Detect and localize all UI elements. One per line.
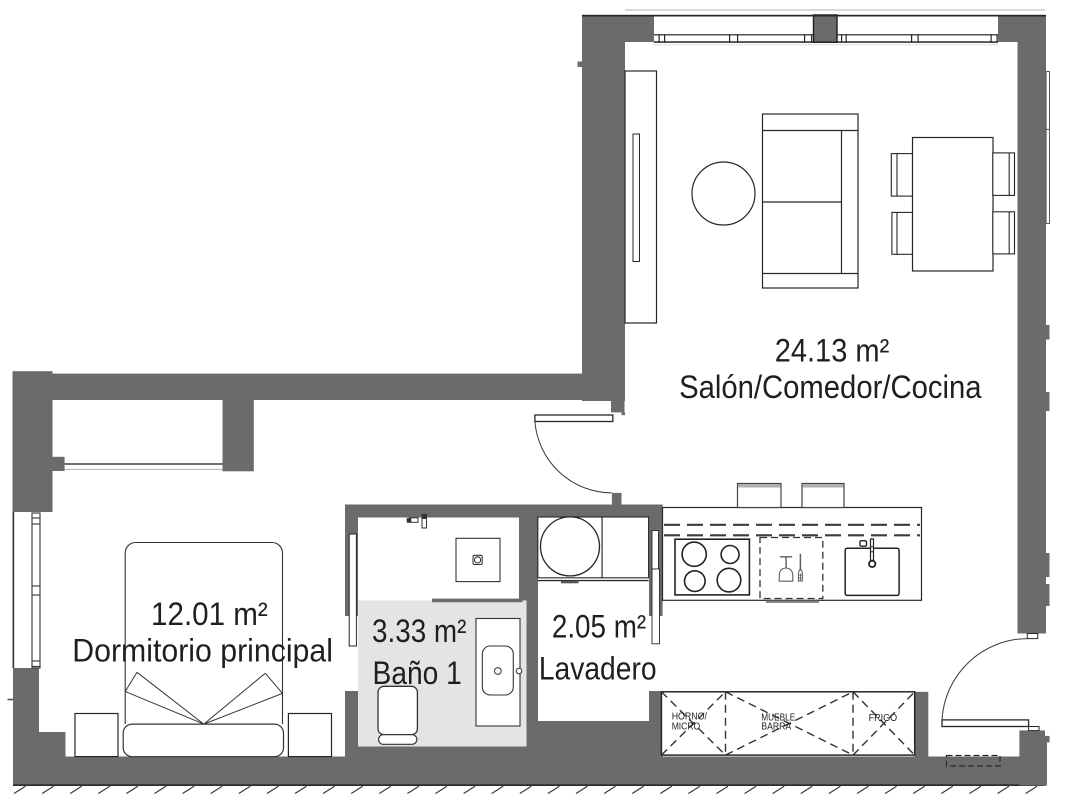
svg-text:3.33 m²: 3.33 m² xyxy=(372,613,467,649)
svg-text:2.05 m²: 2.05 m² xyxy=(552,608,647,644)
svg-text:BARRA: BARRA xyxy=(761,722,791,733)
svg-text:Lavadero: Lavadero xyxy=(539,650,657,686)
svg-text:Dormitorio principal: Dormitorio principal xyxy=(72,633,333,669)
svg-text:24.13 m²: 24.13 m² xyxy=(775,333,890,369)
svg-text:Baño 1: Baño 1 xyxy=(373,655,462,691)
svg-text:Salón/Comedor/Cocina: Salón/Comedor/Cocina xyxy=(679,369,982,405)
svg-text:MICRO: MICRO xyxy=(672,722,701,733)
svg-text:FRIGO: FRIGO xyxy=(869,713,898,724)
svg-text:12.01 m²: 12.01 m² xyxy=(151,596,268,632)
